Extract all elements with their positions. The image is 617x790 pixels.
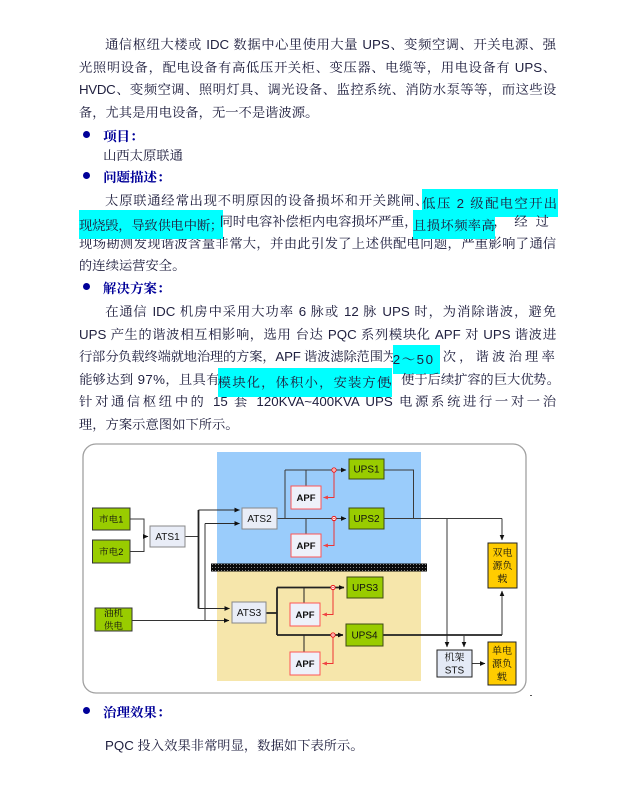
svg-text:APF: APF: [297, 493, 316, 504]
svg-text:UPS2: UPS2: [353, 514, 380, 525]
svg-text:UPS4: UPS4: [351, 631, 378, 642]
svg-text:APF: APF: [297, 541, 316, 552]
svg-text:供电: 供电: [103, 618, 124, 632]
svg-text:ATS2: ATS2: [247, 514, 272, 525]
svg-text:UPS1: UPS1: [353, 465, 380, 476]
svg-text:APF: APF: [296, 659, 315, 670]
svg-text:UPS3: UPS3: [352, 583, 379, 594]
svg-text:市电2: 市电2: [99, 544, 123, 558]
svg-text:载: 载: [496, 668, 507, 683]
svg-text:APF: APF: [296, 610, 315, 621]
svg-text:市电1: 市电1: [99, 511, 123, 525]
svg-text:STS: STS: [445, 662, 465, 677]
svg-text:ATS3: ATS3: [237, 608, 262, 619]
svg-text:ATS1: ATS1: [155, 532, 180, 543]
svg-text:载: 载: [497, 570, 508, 585]
